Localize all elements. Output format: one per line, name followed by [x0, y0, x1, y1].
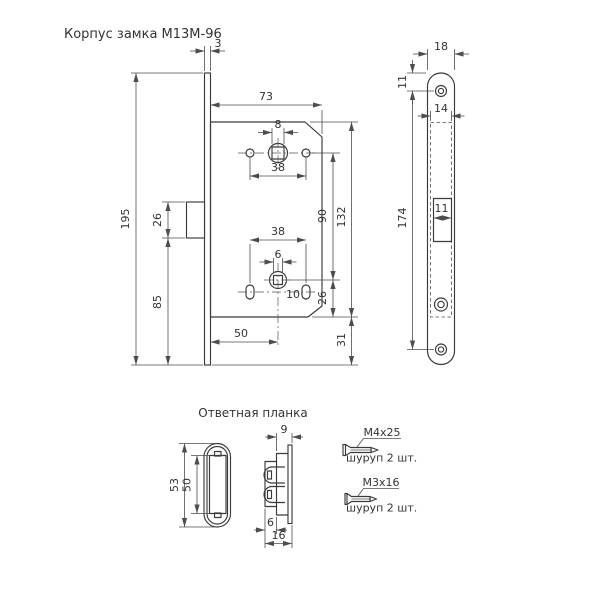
dim-strike-inner-height: 50: [181, 478, 194, 492]
dim-group-strike-flange-depth: 9: [265, 423, 303, 451]
lock-case-outline: [211, 122, 323, 317]
dim-strike-total-depth: 16: [272, 529, 286, 542]
dim-strike-tab-offset: 6: [267, 516, 274, 529]
screw-m4-qty: шуруп 2 шт.: [346, 452, 417, 465]
strike-side-plate: [288, 445, 292, 524]
screw-m3-label: М3х16: [363, 476, 400, 489]
dim-handle-holes-spacing: 38: [271, 161, 285, 174]
screw-m3-qty: шуруп 2 шт.: [346, 502, 417, 515]
dim-case-width: 73: [259, 90, 273, 103]
dim-group-case-width: 73: [211, 90, 323, 134]
dim-case-height: 132: [335, 207, 348, 228]
dim-group-handle-holes-spacing: 38: [250, 158, 306, 180]
dim-spindle-to-wc: 90: [316, 209, 329, 223]
dim-group-latch-to-bottom: 85: [151, 238, 168, 365]
dim-slot-width: 10: [286, 288, 300, 301]
dim-plate-width: 18: [434, 40, 448, 53]
dim-latch-height: 26: [151, 213, 164, 227]
dim-bottom-holes-spacing: 38: [271, 225, 285, 238]
wc-square-hole: [264, 263, 292, 346]
page-title: Корпус замка М13М-96: [64, 27, 222, 42]
strike-plate-title: Ответная планка: [198, 406, 307, 420]
dim-case-bottom-offset: 31: [335, 333, 348, 347]
dim-latch-to-bottom: 85: [151, 295, 164, 309]
dim-group-backset: 50: [211, 327, 279, 342]
dim-holes-spacing: 174: [396, 208, 409, 229]
lock-body-view: 3 73 195 26 85: [119, 37, 358, 365]
screw-m4: М4х25 шуруп 2 шт.: [343, 426, 417, 465]
dim-backset: 50: [234, 327, 248, 340]
screw-m4-leader: [357, 439, 401, 448]
dim-group-latch-height: 26: [151, 202, 185, 238]
dim-faceplate-thickness: 3: [215, 37, 222, 50]
latch-bolt: [187, 202, 205, 238]
strike-side-slot-bottom: [268, 491, 272, 499]
dim-wc-square: 6: [275, 248, 282, 261]
strike-side-tab-profile: [277, 454, 289, 516]
strike-side-slot-top: [268, 471, 272, 479]
faceplate-strip: [205, 73, 211, 365]
dim-strike-flange-depth: 9: [281, 423, 288, 436]
dim-latch-opening-width: 11: [435, 202, 449, 215]
dim-group-faceplate-thickness: 3: [190, 37, 225, 71]
faceplate-outline: [428, 73, 455, 365]
faceplate-front-view: 18 11 174 14 11: [396, 40, 469, 365]
strike-plate-front-view: 53 50: [168, 444, 231, 528]
dim-strike-outer-height: 53: [168, 478, 181, 492]
dim-wc-to-case-bottom: 26: [316, 291, 329, 305]
dim-plate-inner-width: 14: [434, 102, 448, 115]
drawing-canvas: Корпус замка М13М-96: [0, 0, 600, 600]
dim-spindle-square: 8: [275, 118, 282, 131]
screw-m3: М3х16 шуруп 2 шт.: [345, 476, 417, 515]
strike-plate-side-view: 9 6 16: [254, 423, 303, 548]
dim-group-plate-width: 18: [413, 40, 469, 70]
dim-plate-height: 195: [119, 209, 132, 230]
technical-drawing: Корпус замка М13М-96: [0, 0, 600, 600]
screw-m3-leader: [358, 489, 399, 497]
screw-m4-label: М4х25: [364, 426, 401, 439]
dim-top-hole-offset: 11: [396, 75, 409, 89]
